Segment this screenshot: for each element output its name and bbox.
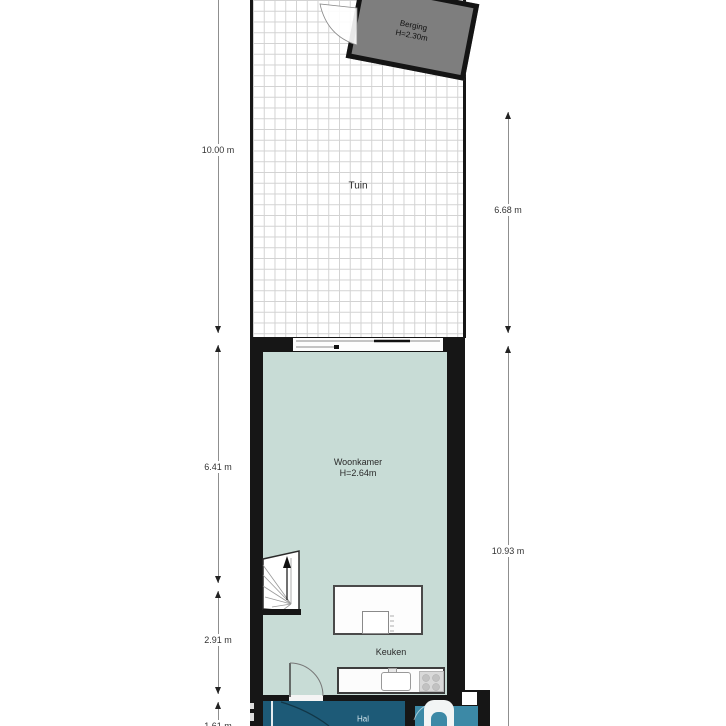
keuken-label: Keuken [376, 647, 407, 657]
wall-notch [250, 703, 254, 709]
dim-line-right-house [508, 346, 509, 726]
dim-arrow-icon [215, 345, 221, 352]
hal-floor [263, 701, 405, 726]
dim-label-hal-left: 1.61 m [201, 720, 235, 726]
dim-arrow-icon [505, 346, 511, 353]
woonkamer-label: Woonkamer H=2.64m [334, 457, 382, 479]
meter-cabinet-divider [271, 701, 273, 726]
dim-label-garden-right: 6.68 m [491, 204, 525, 216]
dim-arrow-icon [505, 112, 511, 119]
dim-label-woonkamer-left: 6.41 m [201, 461, 235, 473]
dim-arrow-icon [215, 591, 221, 598]
toilet-bowl [431, 712, 447, 726]
kitchen-island-sink [362, 611, 389, 634]
shaft-niche [462, 692, 477, 705]
dim-arrow-icon [215, 326, 221, 333]
dim-line-left-garden [218, 0, 219, 333]
woonkamer-floor [263, 352, 447, 695]
dim-arrow-icon [215, 702, 221, 709]
woonkamer-name: Woonkamer [334, 457, 382, 468]
dim-arrow-icon [505, 326, 511, 333]
counter-sink [381, 672, 411, 691]
dim-label-keuken-left: 2.91 m [201, 634, 235, 646]
floorplan-canvas: Berging H=2.30m [0, 0, 726, 726]
sliding-door-window [293, 338, 443, 351]
wall-notch [250, 713, 254, 721]
dim-label-house-right: 10.93 m [489, 545, 528, 557]
hal-label: Hal [357, 715, 369, 724]
dim-arrow-icon [215, 687, 221, 694]
cooktop [419, 671, 444, 692]
dim-arrow-icon [215, 576, 221, 583]
tuin-label: Tuin [348, 181, 367, 192]
counter-faucet [388, 668, 397, 673]
dim-label-garden-left: 10.00 m [199, 144, 238, 156]
woonkamer-height-label: H=2.64m [334, 468, 382, 479]
dim-line-right-garden [508, 112, 509, 333]
